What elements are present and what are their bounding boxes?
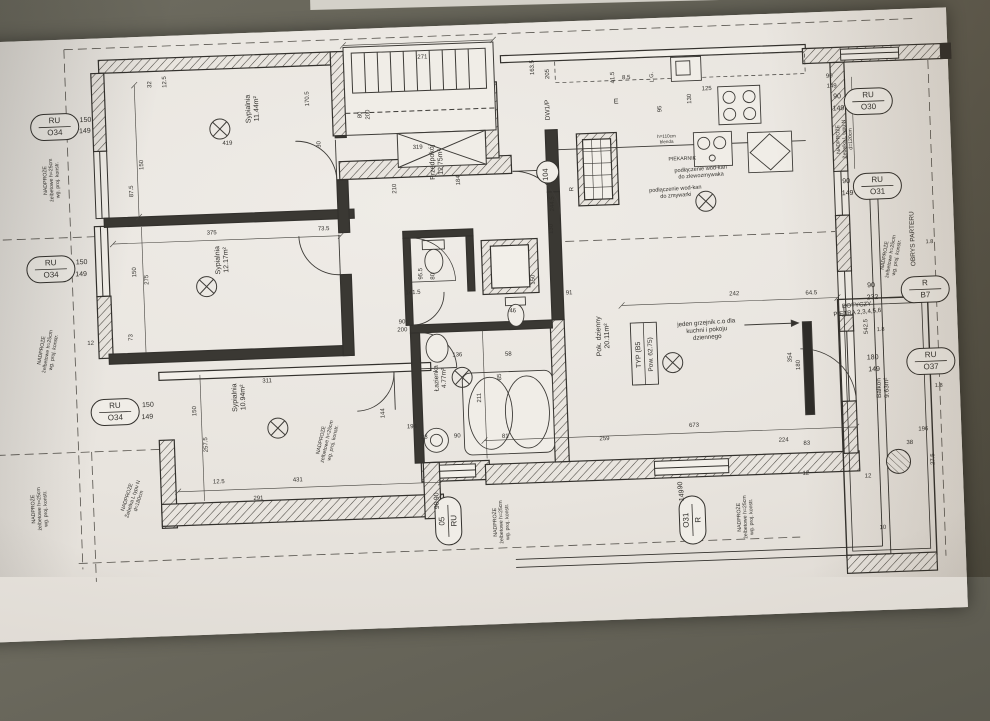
annotation-level-2: 1.8 <box>925 239 933 245</box>
window-tag-dim: 149 <box>141 414 153 421</box>
room-label-bathroom: Łazienka4.77m² <box>433 364 449 391</box>
dim-text: 80 <box>430 272 436 280</box>
ceiling-light-icon <box>662 352 683 373</box>
window-tag-dim: 149 <box>75 271 87 278</box>
dim-text: 149 <box>827 83 838 89</box>
dim-text: 12 <box>802 471 810 477</box>
dim-text: 8.5 <box>622 75 631 81</box>
window-tag-dim: 149 <box>868 366 880 373</box>
annotation-oven-label: PIEKARNIK <box>668 156 696 163</box>
window-tag-dim: 90 <box>867 282 875 289</box>
shaft <box>490 245 530 288</box>
window-tag-text: RU <box>925 350 937 359</box>
window-tag-dim: 90 <box>433 492 440 500</box>
window-tag-dim: 90 <box>434 501 441 509</box>
dim-text: 90 <box>454 433 462 439</box>
window-tag-text: R <box>693 516 702 522</box>
dim-text: 194 <box>407 424 418 430</box>
window-tag-dim: 90 <box>842 178 850 185</box>
dim-text: 271 <box>417 54 428 60</box>
window-tag-text: 05 <box>437 516 446 526</box>
annotation-radiator-note: jeden grzejnik c.o dlakuchni i pokojudzi… <box>676 317 737 343</box>
dim-text: 354 <box>787 351 793 362</box>
wall <box>410 320 552 333</box>
window-tag-RU-O34-a: RUO34 <box>30 113 79 141</box>
dim-text: 205 <box>545 68 551 79</box>
window-tag-RU-O37: RUO37 <box>906 347 955 375</box>
wall <box>91 73 107 151</box>
wall <box>466 236 475 291</box>
window-tag-R-B7: RB7 <box>901 275 950 303</box>
dim-text: 32 <box>147 80 153 88</box>
dim-text: 73 <box>128 333 134 341</box>
dim-text: 196 <box>918 426 929 432</box>
annotation-lintel-right: NADPROŻEżelbetowe h=25cmwg. proj. konstr… <box>877 233 903 279</box>
dim-text: 275 <box>144 274 150 285</box>
stove-icon <box>718 85 761 125</box>
dim-text: 83 <box>803 441 811 447</box>
window-tag-RU-O34-c: RUO34 <box>91 398 140 426</box>
window-tag-text: RU <box>109 401 121 410</box>
dim-text: 38 <box>906 440 914 446</box>
dim-text: 244.5 <box>550 196 557 212</box>
wall <box>97 296 113 358</box>
window-tag-dim: 90 <box>833 93 841 100</box>
dim-text: 291 <box>253 496 264 502</box>
annotation-riser-r: R <box>569 186 575 191</box>
window-top-right <box>840 47 898 60</box>
dim-text: 46 <box>509 308 517 314</box>
dim-text: 23 <box>421 435 429 441</box>
type-box-line2: Pow. 62.75) <box>647 337 655 372</box>
annotation-appliance-e: E <box>614 98 619 105</box>
dim-text: 95 <box>657 105 663 113</box>
dim-text: 73.5 <box>318 226 331 232</box>
room-label-bedroom-3: Sypialnia10.94m² <box>231 383 247 412</box>
ceiling-light-icon <box>210 119 231 140</box>
toilet-icon <box>422 240 445 274</box>
window-tag-text: RU <box>871 175 883 184</box>
annotation-stair-door: DW1/P <box>544 100 552 121</box>
dim-text: 12.5 <box>162 75 168 88</box>
window-bottom-2 <box>654 459 728 476</box>
annotation-lintel-left-1: NADPROŻEżelbetowe h=25cmwg. proj. konstr… <box>41 158 62 202</box>
ceiling-light-icon <box>196 276 217 297</box>
dim-text: 64.5 <box>805 290 818 296</box>
dim-text: 319 <box>413 145 424 151</box>
dim-text: 242 <box>729 291 740 297</box>
window-tag-dim: 149 <box>842 190 854 197</box>
dim-text: 136 <box>452 352 463 358</box>
window-tag-text: O34 <box>43 270 59 280</box>
window-tag-text: B7 <box>920 290 931 299</box>
dim-text: 41.5 <box>610 71 616 84</box>
washbasin-icon <box>426 334 449 363</box>
dim-text: 58 <box>505 351 513 357</box>
dim-text: 12 <box>87 341 95 347</box>
corner-sink-icon <box>747 131 792 173</box>
annotation-lintel-left-2: NADPROŻEżelbetowe h=25cmwg. proj. konstr… <box>34 328 60 374</box>
annotation-ground-floor-outline: OBRYS PARTERU <box>908 211 917 266</box>
wall <box>835 215 851 271</box>
dim-text: 200 <box>365 109 371 120</box>
dim-text: 144 <box>380 407 386 418</box>
annotation-level-1: 1.8 <box>877 327 885 333</box>
annotation-lintel-beam-180: NADPROŻEŻebelka L typu Nd=180cm <box>118 477 148 520</box>
dim-text: 95.5 <box>418 267 424 280</box>
radiator-arrow <box>744 320 798 328</box>
dim-text: 130 <box>687 93 693 104</box>
window-tag-text: RU <box>862 90 874 99</box>
dim-text: 375 <box>207 230 218 236</box>
window-tag-dim: 90 <box>677 481 684 489</box>
window-tag-dim: 149 <box>678 489 685 501</box>
window-tag-text: O34 <box>108 413 124 423</box>
annotation-lintel-beam-120: NADPROŻEŻebelka L typu Nd=120cm <box>834 119 855 159</box>
window-tag-text: O31 <box>681 512 691 528</box>
dim-text: 12 <box>865 473 873 479</box>
room-label-bedroom-1: Sypialnia11.44m² <box>245 94 261 123</box>
dim-text: 311 <box>262 378 272 384</box>
window-tag-dim: 150 <box>80 117 92 124</box>
dim-text: 673 <box>689 423 700 429</box>
dim-text: 200 <box>397 327 408 333</box>
dim-text: 170.5 <box>305 91 312 107</box>
wall <box>940 43 951 58</box>
dim-text: 85 <box>497 373 503 381</box>
window-tag-dim: 150 <box>142 402 154 409</box>
dim-text: 150 <box>530 274 536 285</box>
dim-text: 90 <box>399 319 407 325</box>
dim-text: 184 <box>456 175 462 186</box>
dim-text: 150 <box>139 159 145 170</box>
dim-text: 10 <box>879 525 887 531</box>
annotation-lintel-left-3: NADPROŻEżelbetowe h=25cmwg. proj. konstr… <box>29 487 50 531</box>
annotation-level-3: 1.8 <box>935 383 943 389</box>
type-box-divider <box>643 323 645 385</box>
room-label-bedroom-2: Sypialnia12.17m² <box>214 245 230 274</box>
bathtub-icon <box>462 370 555 455</box>
ceiling-light-icon <box>695 191 716 212</box>
dim-text: 130 <box>549 223 555 234</box>
dim-text: 91 <box>566 290 574 296</box>
ceiling-light-icon <box>268 418 289 439</box>
window-tag-RU-O34-b: RUO34 <box>26 255 75 283</box>
type-box-line1: TYP (B5 <box>635 341 643 368</box>
fridge-icon <box>671 56 702 81</box>
wall <box>337 179 350 232</box>
dim-text: 180 <box>796 359 802 370</box>
dim-text: 431 <box>293 477 304 483</box>
window-tag-text: RU <box>49 116 61 125</box>
dim-text: 542.5 <box>863 318 870 334</box>
wall <box>104 209 354 227</box>
dim-text: 12.5 <box>213 479 226 485</box>
dim-text: 150 <box>192 405 198 416</box>
wall <box>159 362 431 380</box>
dim-text: 211 <box>477 392 483 402</box>
dim-text: 141.5 <box>405 290 421 297</box>
wall <box>162 494 445 526</box>
dim-text: 259 <box>599 436 610 442</box>
annotation-hood-note: h=110cmblenda <box>657 133 676 144</box>
dim-text: 150 <box>132 266 138 277</box>
window-tag-text: R <box>922 278 928 287</box>
window-tag-dim: 149 <box>79 128 91 135</box>
dim-text: 419 <box>222 141 233 147</box>
window-tag-text: O37 <box>923 362 939 372</box>
annotation-lintel-mid: NADPROŻEżelbetowe h=25cmwg. proj. konstr… <box>313 418 341 465</box>
wall <box>403 229 473 239</box>
dim-text: 163.5 <box>530 59 537 75</box>
dim-text: 257.5 <box>203 436 210 452</box>
wall <box>500 45 805 63</box>
room-label-living-room: Pok. dzienny20.11m² <box>595 315 612 356</box>
dim-text: 210 <box>392 183 398 194</box>
wall <box>98 51 342 73</box>
dim-text: 30 <box>316 140 322 148</box>
window-tag-text: RU <box>449 515 458 527</box>
wall <box>340 274 354 355</box>
wall <box>410 333 424 463</box>
circle-tag-text: 104 <box>541 168 550 181</box>
floor-plan-drawing: Sypialnia11.44m²Sypialnia12.17m²Sypialni… <box>0 0 978 641</box>
dim-text: 81 <box>502 434 510 440</box>
dim-text: 80 <box>357 111 363 119</box>
window-tag-text: O31 <box>870 187 886 197</box>
column-icon <box>886 449 911 474</box>
dim-text: 125 <box>702 86 713 92</box>
window-tag-text: O34 <box>47 128 63 138</box>
dim-text: 27.5 <box>930 453 936 466</box>
window-tag-text: RU <box>45 258 57 267</box>
radiator <box>802 321 814 414</box>
sink-icon <box>693 131 732 166</box>
window-tag-O31-R: O31R <box>679 496 707 545</box>
dim-text: 90 <box>826 74 834 80</box>
window-left-1 <box>94 151 109 218</box>
dim-text: 87.5 <box>129 185 135 198</box>
window-tag-dim: 180 <box>867 354 879 361</box>
window-tag-text: O30 <box>861 102 877 112</box>
window-tag-dim: 149 <box>833 105 845 112</box>
room-label-balcony: Balkon9.63m² <box>875 377 890 399</box>
annotation-dishwasher-connection: podłączenie wod-kando zmywarki <box>649 185 702 201</box>
annotation-lintel-bottom-2: NADPROŻEżelbetowe h=25cmwg. proj. konstr… <box>735 495 756 539</box>
window-tag-RU-O30: RUO30 <box>844 87 893 115</box>
dim-text: 224 <box>779 437 790 443</box>
window-tag-dim: 150 <box>76 259 88 266</box>
annotation-sink-connection: podłączenie wod-kando zlewozmywaka <box>674 165 727 181</box>
window-tag-RU-O31: RUO31 <box>853 172 902 200</box>
annotation-lintel-bottom-1: NADPROŻEżelbetowe h=25cmwg. proj. konstr… <box>491 500 512 544</box>
annotation-appliance-lg: L.G. <box>649 71 655 82</box>
photo-tilt-wrapper: Sypialnia11.44m²Sypialnia12.17m²Sypialni… <box>0 0 990 720</box>
